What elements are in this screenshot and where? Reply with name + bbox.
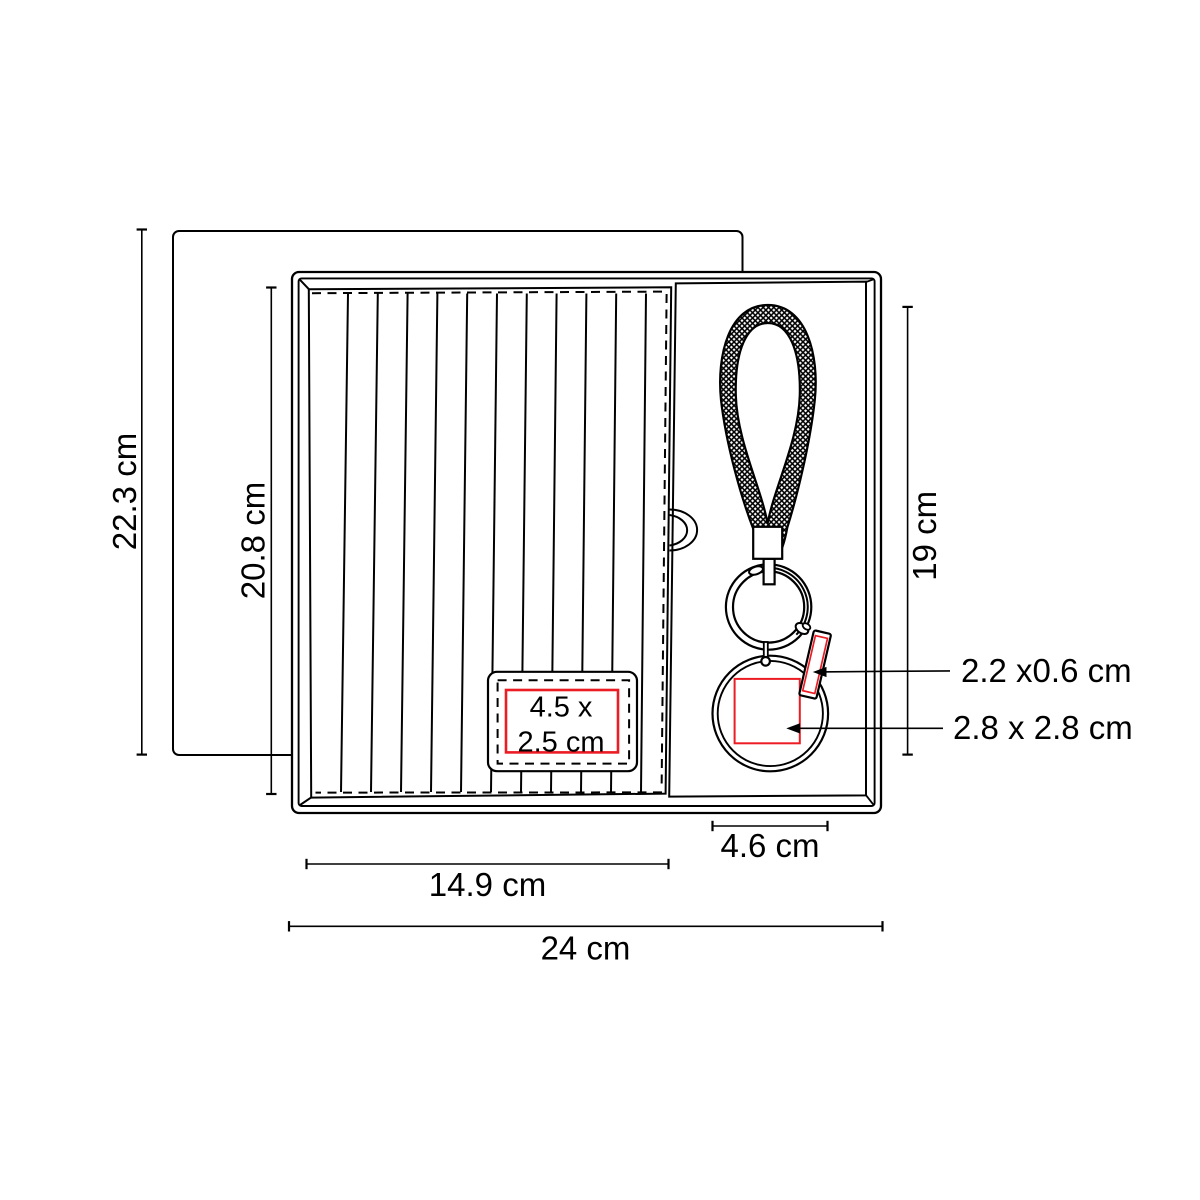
svg-text:14.9 cm: 14.9 cm — [429, 866, 546, 903]
svg-text:2.5 cm: 2.5 cm — [517, 727, 604, 759]
svg-text:22.3 cm: 22.3 cm — [106, 433, 143, 550]
svg-text:24 cm: 24 cm — [541, 930, 631, 967]
svg-text:2.2 x0.6 cm: 2.2 x0.6 cm — [961, 652, 1132, 689]
svg-text:20.8 cm: 20.8 cm — [235, 482, 272, 599]
svg-text:2.8 x 2.8 cm: 2.8 x 2.8 cm — [953, 709, 1133, 746]
svg-text:19 cm: 19 cm — [906, 491, 943, 581]
svg-text:4.5 x: 4.5 x — [530, 692, 593, 724]
svg-text:4.6 cm: 4.6 cm — [720, 827, 819, 864]
